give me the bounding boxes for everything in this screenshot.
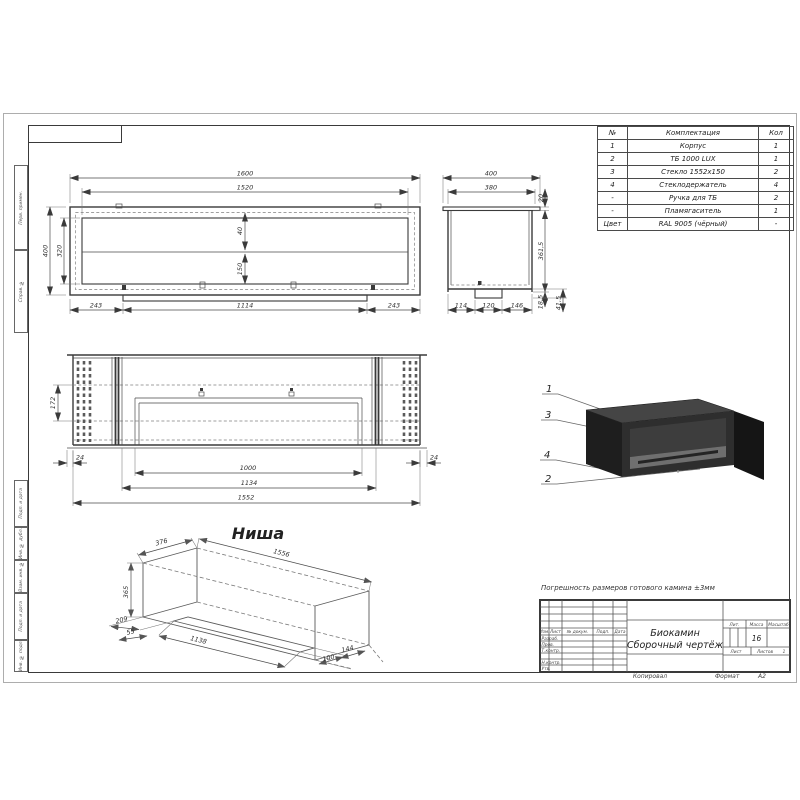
table-row: 1Корпус1 <box>598 140 794 153</box>
dim-209: 209 <box>115 615 129 626</box>
niche-view: Ниша 376 1556 365 209 55 1138 100 14 <box>95 512 395 682</box>
cell-name: Пламягаситель <box>628 205 759 218</box>
dim-1556: 1556 <box>272 547 290 559</box>
cell-name: ТБ 1000 LUX <box>628 153 759 166</box>
cell-no: 3 <box>598 166 628 179</box>
margin-cell-podp-data-2: Подп. и дата <box>14 593 28 640</box>
niche-title: Ниша <box>232 524 284 543</box>
dim-365: 365 <box>122 586 130 598</box>
dim-1552: 1552 <box>238 494 255 502</box>
dim-361-5: 361,5 <box>537 242 545 261</box>
dim-243-right: 243 <box>388 302 400 310</box>
dim-24-left: 24 <box>76 454 84 462</box>
dim-114: 114 <box>455 302 467 310</box>
dim-400-side: 400 <box>485 170 497 178</box>
table-row: 2ТБ 1000 LUX1 <box>598 153 794 166</box>
table-header-row: № Комплектация Кол <box>598 127 794 140</box>
front-view: 1600 1520 400 320 40 150 243 1114 243 <box>40 163 440 323</box>
plan-view: 172 24 24 1000 1134 1552 <box>40 345 460 510</box>
row-razrab: Разраб. <box>542 636 559 642</box>
format-value: А2 <box>758 673 766 680</box>
callout-3: 3 <box>545 410 551 421</box>
table-row: -Ручка для ТБ2 <box>598 192 794 205</box>
corner-stamp-box <box>29 126 122 143</box>
col-masshtab: Масштаб <box>768 622 789 628</box>
listov-label: Листов <box>756 649 774 655</box>
col-lit: Лит. <box>729 622 740 628</box>
dim-1520: 1520 <box>237 184 254 192</box>
col-doc: № докум. <box>566 629 588 635</box>
dim-40: 40 <box>236 227 244 235</box>
table-row: 3Стекло 1552x1502 <box>598 166 794 179</box>
col-header-qty: Кол <box>759 127 794 140</box>
cell-qty: 4 <box>759 179 794 192</box>
cell-qty: 1 <box>759 140 794 153</box>
format-label: Формат <box>715 673 739 680</box>
listov-value: 1 <box>783 649 786 655</box>
callout-1: 1 <box>546 384 552 395</box>
col-header-name: Комплектация <box>628 127 759 140</box>
cell-name: Стекло 1552x150 <box>628 166 759 179</box>
cell-name: Корпус <box>628 140 759 153</box>
dim-24-right: 24 <box>430 454 438 462</box>
cell-name: Ручка для ТБ <box>628 192 759 205</box>
margin-label: Инв. № подл. <box>19 640 24 671</box>
list-label: Лист <box>730 649 742 655</box>
cell-no: - <box>598 192 628 205</box>
iso-right-panel <box>734 411 764 480</box>
cell-qty: 2 <box>759 166 794 179</box>
table-row: 4Стеклодержатель4 <box>598 179 794 192</box>
kopiroval-label: Копировал <box>610 673 690 680</box>
margin-cell-perv-primen: Перв. примен. <box>14 165 28 250</box>
parts-table: № Комплектация Кол 1Корпус1 2ТБ 1000 LUX… <box>597 126 794 231</box>
side-view: 400 380 20 361,5 114 120 146 18,5 41,5 <box>435 163 590 328</box>
margin-label: Подп. и дата <box>19 601 24 632</box>
iso-fireplace-body <box>586 399 764 480</box>
dim-18-5: 18,5 <box>537 295 545 309</box>
table-row: -Пламягаситель1 <box>598 205 794 218</box>
doc-title-line2: Сборочный чертёж <box>627 640 724 651</box>
dim-172: 172 <box>49 397 57 409</box>
callout-4: 4 <box>544 450 550 461</box>
title-block: Изм. Лист № докум. Подп. Дата Разраб. Пр… <box>539 599 791 673</box>
col-izm: Изм. <box>539 629 549 635</box>
dim-376: 376 <box>154 537 168 548</box>
cell-qty: 1 <box>759 205 794 218</box>
margin-cell-podp-data-1: Подп. и дата <box>14 480 28 527</box>
margin-label: Справ. № <box>19 280 24 302</box>
cell-qty: - <box>759 218 794 231</box>
dim-1134: 1134 <box>241 479 258 487</box>
tolerance-note: Погрешность размеров готового камина ±3м… <box>541 584 715 592</box>
margin-label: Перв. примен. <box>19 191 24 225</box>
massa-value: 16 <box>752 634 762 643</box>
row-nkontr: Н.контр. <box>542 660 561 666</box>
margin-label: Подп. и дата <box>19 488 24 519</box>
dim-320: 320 <box>56 245 64 257</box>
dim-20: 20 <box>537 194 545 202</box>
row-tkontr: Т.контр. <box>542 648 561 654</box>
doc-title-line1: Биокамин <box>650 628 700 639</box>
col-podp: Подп. <box>596 629 609 635</box>
margin-label: Взам. инв. № <box>19 561 24 592</box>
dim-146: 146 <box>511 302 523 310</box>
callout-2: 2 <box>545 474 551 485</box>
dim-100: 100 <box>322 653 336 664</box>
dim-144: 144 <box>341 644 355 655</box>
col-list: Лист <box>549 629 561 635</box>
iso-screw <box>677 470 679 472</box>
row-prov: Пров. <box>542 642 555 648</box>
dim-120: 120 <box>482 302 494 310</box>
niche-dim-lines <box>109 538 372 669</box>
margin-cell-inv-dubl: Инв. № дубл. <box>14 527 28 560</box>
cell-no: 2 <box>598 153 628 166</box>
plan-view-body <box>67 355 427 448</box>
margin-label: Инв. № дубл. <box>19 528 24 559</box>
cell-no: 1 <box>598 140 628 153</box>
side-view-dim-lines <box>443 175 567 314</box>
dim-150: 150 <box>236 263 244 275</box>
dim-380: 380 <box>485 184 497 192</box>
dim-1600: 1600 <box>237 170 254 178</box>
dim-243-left: 243 <box>90 302 102 310</box>
dim-1000: 1000 <box>240 464 257 472</box>
cell-name: Стеклодержатель <box>628 179 759 192</box>
cell-qty: 2 <box>759 192 794 205</box>
margin-cell-vzam-inv: Взам. инв. № <box>14 560 28 593</box>
front-view-dim-lines <box>46 174 420 314</box>
cell-no: 4 <box>598 179 628 192</box>
margin-cell-sprav-no: Справ. № <box>14 250 28 333</box>
row-utv: Утв. <box>542 666 551 672</box>
cell-no: - <box>598 205 628 218</box>
col-massa: Масса <box>750 622 764 628</box>
cell-no: Цвет <box>598 218 628 231</box>
dim-41-5: 41,5 <box>555 296 563 310</box>
col-data: Дата <box>613 629 625 635</box>
margin-cell-inv-podl: Инв. № подл. <box>14 640 28 672</box>
dim-1114: 1114 <box>237 302 254 310</box>
iso-view: 1 3 4 2 <box>528 372 788 502</box>
cell-qty: 1 <box>759 153 794 166</box>
cell-name: RAL 9005 (чёрный) <box>628 218 759 231</box>
dim-400: 400 <box>42 245 50 257</box>
side-view-body <box>443 207 540 298</box>
drawing-sheet-screenshot: Перв. примен. Справ. № Подп. и дата Инв.… <box>0 0 800 800</box>
table-row: ЦветRAL 9005 (чёрный)- <box>598 218 794 231</box>
col-header-no: № <box>598 127 628 140</box>
